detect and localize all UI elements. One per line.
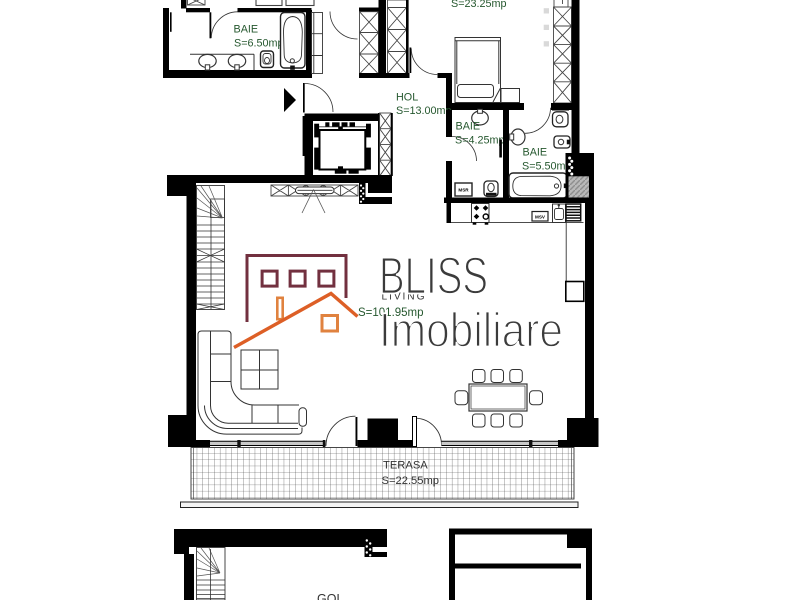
svg-text:BAIE: BAIE	[523, 147, 548, 159]
svg-text:BLISS: BLISS	[379, 248, 488, 306]
svg-text:S=5.50mp: S=5.50mp	[522, 161, 572, 173]
svg-text:S=4.25mp: S=4.25mp	[455, 135, 505, 147]
svg-text:S=22.55mp: S=22.55mp	[382, 475, 440, 487]
svg-text:Imobiliare: Imobiliare	[379, 304, 563, 358]
svg-text:TERASA: TERASA	[383, 460, 428, 472]
svg-text:S=23.25mp: S=23.25mp	[451, 0, 507, 10]
svg-text:GOL: GOL	[317, 592, 343, 600]
svg-text:S=6.50mp: S=6.50mp	[234, 38, 284, 50]
svg-text:S=13.00mp: S=13.00mp	[396, 105, 452, 117]
svg-text:BAIE: BAIE	[234, 24, 259, 36]
svg-text:MSV: MSV	[535, 215, 546, 220]
svg-text:HOL: HOL	[396, 92, 418, 104]
svg-text:BAIE: BAIE	[456, 121, 481, 133]
svg-text:MSR: MSR	[458, 188, 469, 193]
